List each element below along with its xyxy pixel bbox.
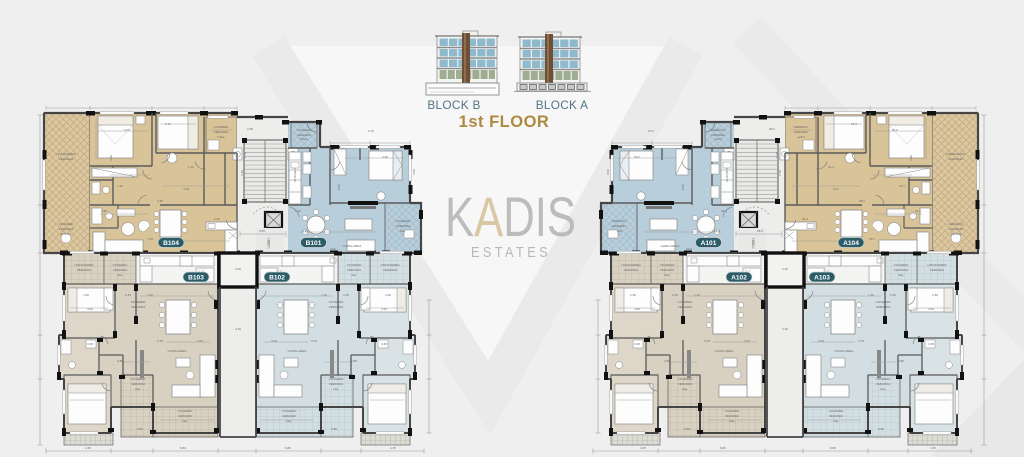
svg-text:A102: A102 [731,274,747,281]
svg-text:5.65: 5.65 [259,229,265,233]
svg-text:COVERED: COVERED [347,263,363,267]
svg-text:VERANDA: VERANDA [347,268,362,272]
svg-text:COVERED: COVERED [329,377,345,381]
svg-text:UNCOVERED: UNCOVERED [56,152,76,156]
svg-text:6.80: 6.80 [137,427,143,431]
svg-text:3.50: 3.50 [381,307,387,311]
svg-text:UNCOVERED: UNCOVERED [74,263,94,267]
svg-text:4sq.: 4sq. [351,273,357,277]
svg-text:7.9sq.: 7.9sq. [217,135,225,139]
svg-text:B102: B102 [269,274,285,281]
svg-text:1.30: 1.30 [147,293,153,297]
svg-text:2.65: 2.65 [157,199,163,203]
svg-text:3.70: 3.70 [124,128,130,132]
svg-text:3.75: 3.75 [311,339,317,343]
svg-text:LIVING AREA: LIVING AREA [168,349,187,353]
svg-text:1.10: 1.10 [243,152,247,158]
svg-text:1st FLOOR: 1st FLOOR [459,113,550,131]
svg-text:2.40: 2.40 [101,209,107,213]
svg-text:LIVING AREA: LIVING AREA [343,244,362,248]
svg-text:4.60: 4.60 [412,169,416,175]
svg-text:1.50: 1.50 [83,293,89,297]
svg-text:VERANDA: VERANDA [214,130,229,134]
svg-text:11.80sq.: 11.80sq. [60,232,71,236]
svg-text:1.30: 1.30 [214,217,220,221]
svg-text:4.35: 4.35 [930,446,936,450]
svg-text:A103: A103 [814,274,830,281]
svg-text:VERANDA: VERANDA [282,414,297,418]
svg-text:COVERED: COVERED [131,377,147,381]
svg-text:3.45: 3.45 [382,155,388,159]
svg-text:0.60: 0.60 [337,184,341,190]
svg-text:2sq.: 2sq. [333,387,339,391]
svg-text:1.30: 1.30 [321,293,327,297]
svg-text:2sq.: 2sq. [182,419,188,423]
svg-text:3.25: 3.25 [87,342,93,346]
svg-text:A104: A104 [843,240,859,247]
svg-text:2.80: 2.80 [117,359,123,363]
svg-text:COVERED: COVERED [131,300,147,304]
svg-text:BLOCK A: BLOCK A [536,98,589,112]
svg-text:6.80: 6.80 [285,446,291,450]
svg-text:4sq.: 4sq. [117,273,123,277]
svg-text:COVERED: COVERED [282,409,298,413]
svg-text:3.25: 3.25 [381,342,387,346]
svg-text:2sq.: 2sq. [286,419,292,423]
svg-text:3.00: 3.00 [197,339,203,343]
svg-text:3.75: 3.75 [157,339,163,343]
svg-text:COVERED: COVERED [178,409,194,413]
svg-text:4.35: 4.35 [390,446,396,450]
svg-text:1.30: 1.30 [295,209,301,213]
svg-text:6.80: 6.80 [180,446,186,450]
svg-text:COVERED: COVERED [214,125,230,129]
svg-text:VERANDA: VERANDA [383,268,398,272]
svg-text:6.80: 6.80 [720,446,726,450]
svg-text:ESTATES: ESTATES [471,244,551,261]
svg-text:1.10: 1.10 [117,184,123,188]
svg-text:2.45: 2.45 [125,293,131,297]
svg-text:2.00: 2.00 [330,247,336,251]
svg-text:2.65: 2.65 [247,127,253,131]
svg-text:3.70: 3.70 [368,129,374,133]
svg-text:VERANDA: VERANDA [59,227,74,231]
svg-text:2.45: 2.45 [343,293,349,297]
svg-text:VERANDA: VERANDA [131,305,146,309]
svg-text:4.35: 4.35 [640,446,646,450]
svg-text:VERANDA: VERANDA [113,268,128,272]
svg-text:2.40: 2.40 [235,267,241,271]
svg-text:VERANDA: VERANDA [59,157,74,161]
svg-text:3.50: 3.50 [87,307,93,311]
svg-text:6.80: 6.80 [331,427,337,431]
svg-text:COVERED: COVERED [113,263,129,267]
svg-text:B104: B104 [163,240,179,247]
svg-text:KITCHEN: KITCHEN [293,168,297,181]
svg-text:5.5sq.: 5.5sq. [300,137,308,141]
svg-text:COVERED: COVERED [297,128,313,132]
svg-text:6.45: 6.45 [302,229,308,233]
svg-text:LOBBY: LOBBY [267,237,271,249]
svg-text:VERANDA: VERANDA [396,224,411,228]
svg-text:VERANDA: VERANDA [329,382,344,386]
svg-text:B101: B101 [306,240,322,247]
svg-text:VERANDA: VERANDA [329,305,344,309]
svg-text:2.40: 2.40 [235,327,241,331]
svg-text:KADIS: KADIS [445,185,576,248]
svg-text:VERANDA: VERANDA [178,414,193,418]
svg-text:2sq.: 2sq. [135,387,141,391]
svg-text:2.80: 2.80 [351,359,357,363]
svg-text:7.05: 7.05 [147,237,153,241]
svg-text:BLOCK B: BLOCK B [427,98,480,112]
svg-text:VERANDA: VERANDA [131,382,146,386]
svg-text:B103: B103 [188,274,204,281]
svg-text:UNCOVERED: UNCOVERED [380,263,400,267]
svg-text:8sq.: 8sq. [400,229,406,233]
svg-text:6.80: 6.80 [830,446,836,450]
svg-text:4.10: 4.10 [183,187,189,191]
svg-text:1.10: 1.10 [188,165,194,169]
svg-text:3.50: 3.50 [109,155,113,161]
svg-text:4.35: 4.35 [85,446,91,450]
svg-text:LIVING AREA: LIVING AREA [288,349,307,353]
svg-text:1.10: 1.10 [240,170,244,176]
svg-text:A101: A101 [701,240,717,247]
svg-text:3.00: 3.00 [271,339,277,343]
svg-text:COVERED: COVERED [396,219,412,223]
svg-text:1.50: 1.50 [385,293,391,297]
svg-text:COVERED: COVERED [329,300,345,304]
svg-text:COVERED: COVERED [59,222,75,226]
svg-text:VERANDA: VERANDA [77,268,92,272]
